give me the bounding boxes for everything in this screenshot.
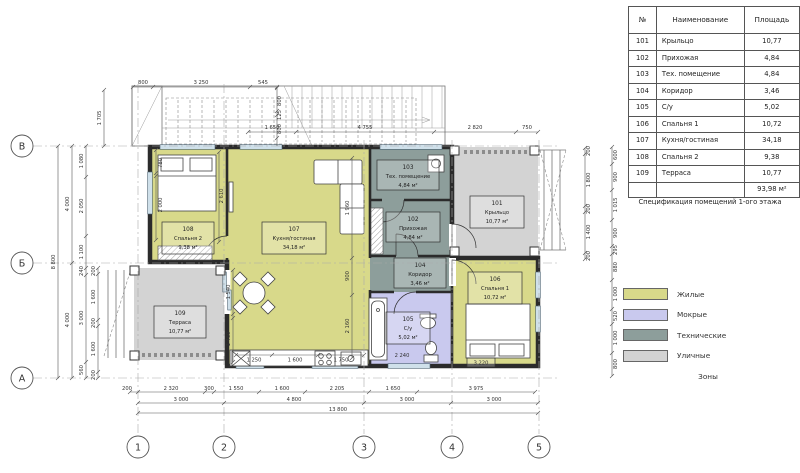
window: [536, 272, 541, 298]
room-area: 4,84 м²: [398, 183, 417, 189]
cell-empty: [656, 182, 744, 197]
dim-label: 750: [522, 125, 532, 131]
dim-label: 545: [258, 80, 268, 86]
table-row: 105С/у5,02: [629, 100, 800, 117]
cell-name: Спальня 1: [656, 116, 744, 133]
toilet: [424, 342, 438, 363]
dim-label: 520: [613, 311, 619, 321]
dim-label: 900: [345, 271, 351, 281]
cell-area: 9,38: [744, 149, 799, 166]
dim-label: 1 550: [229, 386, 244, 392]
room-name: Терраса: [168, 320, 191, 326]
legend-label: Технические: [677, 331, 726, 340]
table-row: 109Терраса10,77: [629, 166, 800, 183]
axis-col-label: 5: [536, 443, 542, 454]
cell-num: 107: [629, 133, 657, 150]
cell-area: 5,02: [744, 100, 799, 117]
total-area: 93,98 м²: [744, 182, 799, 197]
room-number: 108: [182, 227, 193, 233]
dim-label: 900: [613, 228, 619, 238]
dim-label: 4 800: [287, 397, 302, 403]
dim-label: 3 975: [469, 386, 484, 392]
dim-label: 1 750: [334, 358, 349, 364]
dim-label: 2 205: [330, 386, 345, 392]
cell-name: С/у: [656, 100, 744, 117]
dim-label: 1 080: [79, 154, 85, 169]
room-area: 9,38 м²: [178, 245, 197, 251]
room-label-105: 105 С/у 5,02 м²: [386, 312, 430, 344]
hall-wardrobe: [371, 208, 383, 254]
dim-label: 240: [79, 266, 85, 276]
legend-item-tech: Технические: [623, 325, 793, 346]
dim-label: 3 000: [174, 397, 189, 403]
dim-label: 2 160: [345, 319, 351, 334]
cell-area: 4,84: [744, 67, 799, 84]
dim-label: 200: [91, 370, 97, 380]
axis-row-label: Б: [19, 259, 26, 270]
room-label-107: 107 Кухня/гостиная 34,18 м²: [262, 222, 326, 254]
legend-swatch-tech: [623, 329, 668, 341]
bed-bedroom2: [158, 155, 216, 211]
cell-name: Прихожая: [656, 50, 744, 67]
cell-name: Коридор: [656, 83, 744, 100]
table-row: 106Спальня 110,72: [629, 116, 800, 133]
dim-label: 1 650: [265, 125, 280, 131]
room-area: 4,84 м²: [403, 235, 422, 241]
table-row: 104Коридор3,46: [629, 83, 800, 100]
dim-label: 1 100: [79, 245, 85, 260]
dim-label: 2 050: [79, 199, 85, 214]
legend-caption: Зоны: [623, 372, 793, 381]
dim-label: 2 240: [395, 353, 410, 359]
room-area: 34,18 м²: [283, 245, 306, 251]
terrace-steps: [104, 270, 130, 358]
room-name: Прихожая: [399, 226, 427, 232]
cell-num: 104: [629, 83, 657, 100]
dim-label: 1 400: [586, 225, 592, 240]
cell-empty: [629, 182, 657, 197]
floor-plan-drawing: 108 Спальня 2 9,38 м² 109 Терраса 10,77 …: [0, 0, 620, 473]
room-name: С/у: [404, 326, 412, 332]
dim-label: 200: [91, 266, 97, 276]
room-label-103: 103 Тех. помещение 4,84 м²: [377, 160, 439, 190]
axis-col-label: 2: [221, 443, 227, 454]
room-number: 109: [174, 311, 185, 317]
room-number: 101: [491, 201, 502, 207]
table-row: 101Крыльцо10,77: [629, 34, 800, 51]
dim-label: 780: [158, 158, 164, 168]
room-area: 10,72 м²: [484, 295, 507, 301]
legend-label: Жилые: [677, 290, 705, 299]
window: [240, 145, 282, 150]
cell-name: Тех. помещение: [656, 67, 744, 84]
room-label-104: 104 Коридор 3,46 м²: [394, 258, 446, 288]
dim-label: 2 000: [158, 198, 164, 213]
dim-label: 1 250: [247, 358, 262, 364]
room-name: Крыльцо: [485, 210, 509, 216]
dim-label: 1 705: [97, 111, 103, 126]
dim-label: 4 000: [65, 197, 71, 212]
dim-label: 3 250: [194, 80, 209, 86]
dim-label: 200: [586, 146, 592, 156]
dim-label: 560: [79, 365, 85, 375]
spec-header-row: № Наименование Площадь: [629, 7, 800, 34]
cell-num: 109: [629, 166, 657, 183]
cell-num: 105: [629, 100, 657, 117]
cell-name: Терраса: [656, 166, 744, 183]
table-row: 108Спальня 29,38: [629, 149, 800, 166]
cell-area: 34,18: [744, 133, 799, 150]
axis-row-label: В: [19, 142, 26, 153]
axis-col-label: 1: [135, 443, 141, 454]
dim-label: 1 960: [345, 201, 351, 216]
room-area: 10,77 м²: [169, 329, 192, 335]
dim-label: 1 600: [275, 386, 290, 392]
cell-num: 101: [629, 34, 657, 51]
dim-label: 1 600: [288, 358, 303, 364]
room-name: Тех. помещение: [385, 174, 430, 180]
room-name: Кухня/гостиная: [273, 236, 316, 242]
cell-num: 108: [629, 149, 657, 166]
dim-label: 3 000: [400, 397, 415, 403]
dim-label: 125: [277, 110, 283, 120]
room-label-108: 108 Спальня 2 9,38 м²: [162, 222, 214, 254]
dim-label: 1 800: [586, 173, 592, 188]
room-number: 107: [288, 227, 299, 233]
cell-name: Кухня/гостиная: [656, 133, 744, 150]
room-label-109: 109 Терраса 10,77 м²: [154, 306, 206, 338]
dim-label: 900: [613, 172, 619, 182]
dim-label: 1 460: [226, 332, 232, 347]
spec-header-area: Площадь: [744, 7, 799, 34]
dim-label: 300: [204, 386, 214, 392]
room-name: Спальня 2: [174, 236, 202, 242]
spec-table-caption: Спецификация помещений 1-ого этажа: [628, 198, 792, 206]
cell-area: 3,46: [744, 83, 799, 100]
dim-label: 2 320: [164, 386, 179, 392]
dim-label: 1 540: [226, 285, 232, 300]
room-label-106: 106 Спальня 1 10,72 м²: [468, 272, 522, 304]
cell-area: 10,77: [744, 34, 799, 51]
room-area: 5,02 м²: [398, 335, 417, 341]
window: [388, 364, 430, 369]
dim-label: 200: [586, 204, 592, 214]
dim-label: 1 600: [91, 290, 97, 305]
table-row: 102Прихожая4,84: [629, 50, 800, 67]
staircase: [132, 86, 445, 146]
dim-label: 200: [122, 386, 132, 392]
spec-table: № Наименование Площадь 101Крыльцо10,77 1…: [628, 6, 800, 198]
legend-swatch-street: [623, 350, 668, 362]
axis-row-label: А: [19, 374, 26, 385]
dim-label: 800: [138, 80, 148, 86]
dim-label: 2 610: [219, 189, 225, 204]
room-label-102: 102 Прихожая 4,84 м²: [386, 212, 440, 242]
legend-item-street: Уличные: [623, 346, 793, 367]
cell-name: Крыльцо: [656, 34, 744, 51]
room-name: Спальня 1: [481, 286, 509, 292]
cell-area: 10,72: [744, 116, 799, 133]
cell-num: 106: [629, 116, 657, 133]
cell-area: 10,77: [744, 166, 799, 183]
dim-label: 1 650: [386, 386, 401, 392]
table-row: 107Кухня/гостиная34,18: [629, 133, 800, 150]
dim-label: 3 000: [487, 397, 502, 403]
cell-area: 4,84: [744, 50, 799, 67]
window: [148, 172, 153, 214]
cell-num: 103: [629, 67, 657, 84]
window: [536, 306, 541, 332]
table-row: 103Тех. помещение4,84: [629, 67, 800, 84]
room-number: 104: [414, 263, 425, 269]
room-number: 105: [402, 317, 413, 323]
spec-header-num: №: [629, 7, 657, 34]
porch-steps: [540, 150, 566, 250]
axis-col-label: 3: [361, 443, 367, 454]
cell-num: 102: [629, 50, 657, 67]
tv-panel: [229, 182, 233, 212]
window: [160, 145, 215, 150]
dim-label: 1 600: [91, 342, 97, 357]
dim-label: 1 000: [613, 287, 619, 302]
dim-label: 600: [613, 150, 619, 160]
axis-col-label: 4: [449, 443, 455, 454]
bed-bedroom1: [466, 304, 530, 358]
dim-label: 4 755: [358, 125, 373, 131]
dim-label: 800: [613, 359, 619, 369]
table-total-row: 93,98 м²: [629, 182, 800, 197]
room-number: 102: [407, 217, 418, 223]
legend-item-living: Жилые: [623, 284, 793, 305]
room-number: 106: [489, 277, 500, 283]
dim-label: 1 015: [613, 198, 619, 213]
dim-label: 8 800: [51, 255, 57, 270]
window: [380, 145, 442, 150]
legend-swatch-wet: [623, 309, 668, 321]
room-area: 10,77 м²: [486, 219, 509, 225]
bathtub: [369, 298, 387, 360]
dim-label: 4 000: [65, 313, 71, 328]
room-label-101: 101 Крыльцо 10,77 м²: [470, 196, 524, 228]
dim-label: 3 220: [474, 361, 489, 367]
legend-item-wet: Мокрые: [623, 305, 793, 326]
dim-label: 3 000: [79, 311, 85, 326]
room-number: 103: [402, 165, 413, 171]
dim-label: 880: [613, 262, 619, 272]
dim-label: 200: [586, 251, 592, 261]
legend-label: Уличные: [677, 351, 710, 360]
floor-plan-page: 108 Спальня 2 9,38 м² 109 Терраса 10,77 …: [0, 0, 800, 473]
spec-header-name: Наименование: [656, 7, 744, 34]
dim-label: 200: [91, 318, 97, 328]
dim-label: 2 820: [468, 125, 483, 131]
dim-label: 800: [277, 96, 283, 106]
cell-name: Спальня 2: [656, 149, 744, 166]
room-area: 3,46 м²: [410, 281, 429, 287]
zones-legend: Жилые Мокрые Технические Уличные Зоны: [623, 284, 793, 381]
dim-label: 1 000: [613, 331, 619, 346]
room-name: Коридор: [408, 272, 432, 278]
legend-label: Мокрые: [677, 310, 707, 319]
dim-label: 13 800: [329, 407, 347, 413]
legend-swatch-living: [623, 288, 668, 300]
dim-label: 295: [613, 245, 619, 255]
